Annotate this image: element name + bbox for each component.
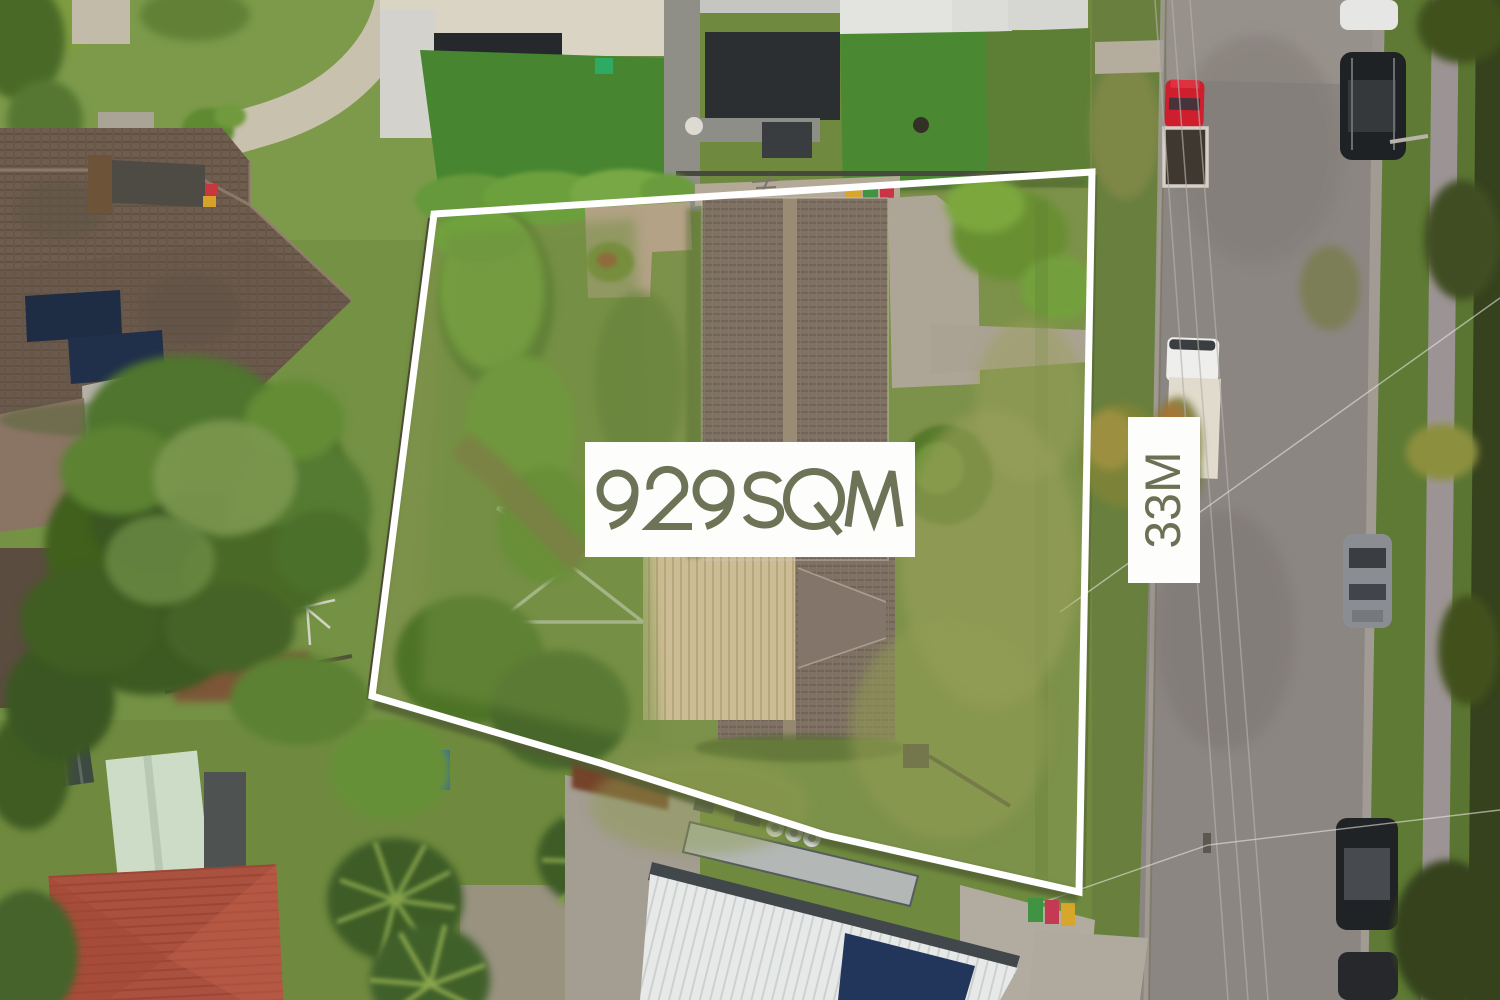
svg-text:33M: 33M: [1135, 451, 1191, 548]
